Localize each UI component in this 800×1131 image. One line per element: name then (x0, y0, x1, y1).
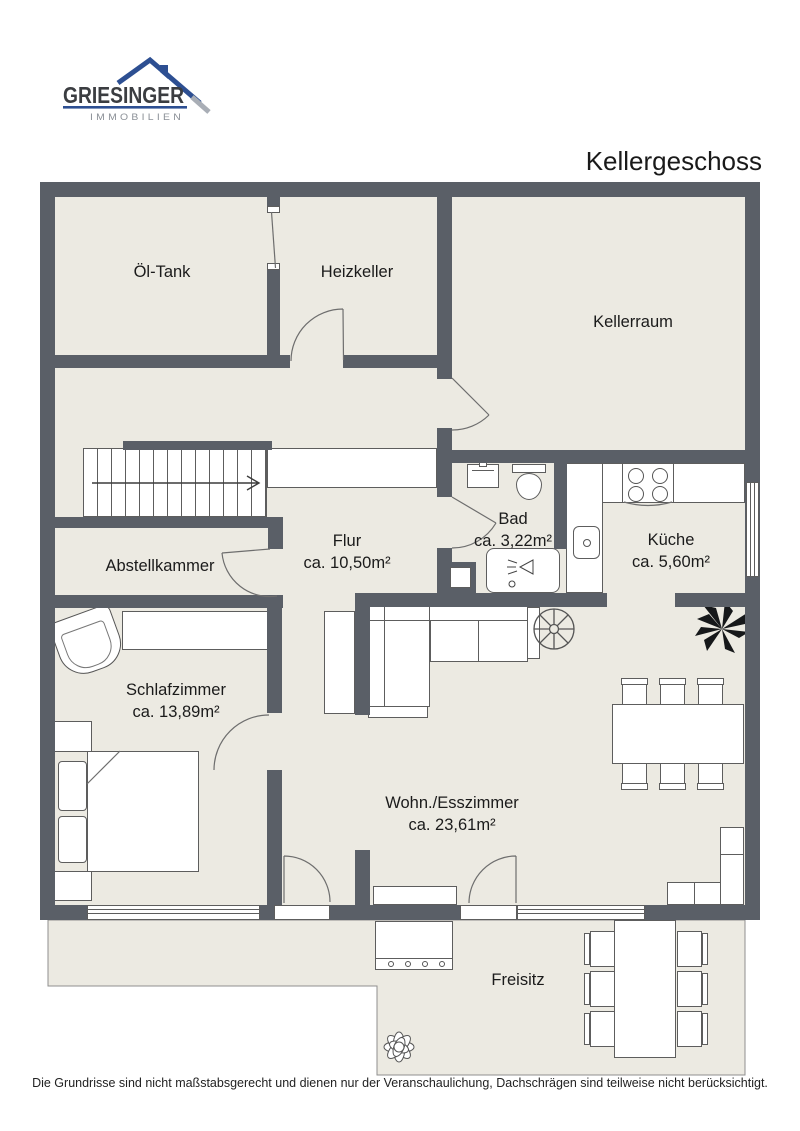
room-name: Bad (474, 508, 552, 530)
patio-table (614, 920, 676, 1058)
stove-burner (652, 468, 668, 484)
window-line (88, 909, 259, 910)
room-name: Flur (303, 530, 390, 552)
sofa-cushion-line (384, 605, 385, 706)
wall (267, 270, 280, 355)
wall (40, 182, 760, 197)
shower (486, 548, 560, 593)
stair-landing (267, 448, 437, 488)
sofa-cushion-line (368, 620, 527, 621)
dining-chair (660, 763, 685, 784)
wall (123, 441, 272, 450)
window-line (518, 909, 644, 910)
nightstand (52, 721, 92, 752)
patio-chair (677, 931, 702, 967)
bathroom-sink-line (472, 470, 494, 471)
pillow (58, 816, 87, 863)
wall (437, 463, 452, 497)
dining-chair (697, 783, 724, 790)
logo-roof-shadow-icon (192, 97, 209, 112)
corner-bench (694, 882, 721, 905)
window-line (750, 483, 751, 576)
room-name: Schlafzimmer (126, 679, 226, 701)
stove-burner (628, 486, 644, 502)
plan-title: Kellergeschoss (586, 146, 762, 177)
nightstand (52, 871, 92, 901)
patio-chair (702, 973, 708, 1005)
floorplan-page: GRIESINGER IMMOBILIEN Kellergeschoss (0, 0, 800, 1131)
toilet-tank (512, 464, 546, 473)
wall (267, 608, 282, 713)
patio-chair (590, 931, 615, 967)
door-threshold (460, 905, 517, 920)
logo-brand-text: GRIESINGER (63, 82, 184, 108)
dining-chair (698, 763, 723, 784)
room-label-oeltank: Öl-Tank (134, 261, 191, 283)
room-label-kueche: Küche ca. 5,60m² (632, 529, 710, 573)
wall (554, 463, 567, 549)
dining-chair (698, 684, 723, 705)
room-name: Wohn./Esszimmer (385, 792, 519, 814)
logo-chimney-icon (160, 65, 168, 79)
plant-outline-icon (372, 1018, 426, 1074)
grill (375, 921, 453, 959)
window-line (88, 913, 259, 914)
grill-knob (439, 961, 445, 967)
bathroom-sink (467, 464, 499, 488)
kitchen-sink-drain (583, 539, 591, 547)
wall (645, 905, 760, 920)
room-label-bad: Bad ca. 3,22m² (474, 508, 552, 552)
dining-table (612, 704, 744, 764)
sideboard (373, 886, 457, 905)
patio-chair (590, 1011, 615, 1047)
door-jamb (267, 263, 280, 270)
wall (355, 850, 370, 907)
wall (260, 905, 275, 920)
room-area: ca. 3,22m² (474, 530, 552, 552)
room-area: ca. 5,60m² (632, 551, 710, 573)
logo-subtitle-text: IMMOBILIEN (90, 112, 184, 123)
dining-chair (621, 783, 648, 790)
room-area: ca. 13,89m² (126, 701, 226, 723)
room-label-flur: Flur ca. 10,50m² (303, 530, 390, 574)
dining-chair (622, 763, 647, 784)
room-label-heizkeller: Heizkeller (321, 261, 393, 283)
dining-chair (622, 684, 647, 705)
grill-knob (422, 961, 428, 967)
wall (267, 770, 282, 905)
wall (40, 595, 283, 608)
wall (675, 593, 745, 607)
armchair-seat (60, 619, 117, 673)
room-label-freisitz: Freisitz (491, 969, 544, 991)
staircase (83, 448, 267, 517)
room-name: Küche (632, 529, 710, 551)
sofa-cushion-line (430, 621, 431, 661)
double-bed (87, 751, 199, 872)
duct-shaft-opening (450, 567, 471, 588)
door-jamb (267, 206, 280, 213)
wardrobe (122, 611, 269, 650)
wall (40, 905, 87, 920)
wall (437, 450, 745, 463)
stove-burner (628, 468, 644, 484)
wall (268, 517, 283, 549)
patio-chair (702, 1013, 708, 1045)
room-label-abstellkammer: Abstellkammer (105, 555, 214, 577)
window-line (754, 483, 755, 576)
room-label-kellerraum: Kellerraum (593, 311, 673, 333)
wall (355, 605, 370, 715)
dining-chair (660, 684, 685, 705)
room-label-schlafzimmer: Schlafzimmer ca. 13,89m² (126, 679, 226, 723)
wall (355, 593, 607, 607)
sofa-cushion-line (478, 621, 479, 661)
dining-chair (659, 783, 686, 790)
sofa-armrest (368, 706, 428, 718)
plant-icon (695, 601, 749, 657)
door-threshold (274, 905, 330, 920)
corner-bench (720, 854, 744, 905)
logo-underline (63, 106, 187, 109)
corner-bench (667, 882, 695, 905)
wall (343, 355, 452, 368)
wall (437, 197, 452, 379)
room-area: ca. 10,50m² (303, 552, 390, 574)
wall (55, 355, 290, 368)
window-line (518, 913, 644, 914)
stove-burner (652, 486, 668, 502)
wagon-wheel-icon (531, 606, 577, 652)
patio-chair (590, 971, 615, 1007)
pillow (58, 761, 87, 811)
wall (40, 182, 55, 920)
grill-knob (405, 961, 411, 967)
patio-chair (677, 1011, 702, 1047)
grill-knob (388, 961, 394, 967)
room-label-wohnesszimmer: Wohn./Esszimmer ca. 23,61m² (385, 792, 519, 836)
wall (330, 905, 460, 920)
corner-bench (720, 827, 744, 855)
hall-cabinet (324, 611, 355, 714)
patio-chair (677, 971, 702, 1007)
disclaimer-text: Die Grundrisse sind nicht maßstabsgerech… (0, 1076, 800, 1090)
patio-chair (702, 933, 708, 965)
griesinger-logo: GRIESINGER IMMOBILIEN (60, 56, 230, 126)
room-area: ca. 23,61m² (385, 814, 519, 836)
wall (55, 517, 268, 528)
window (746, 482, 759, 577)
